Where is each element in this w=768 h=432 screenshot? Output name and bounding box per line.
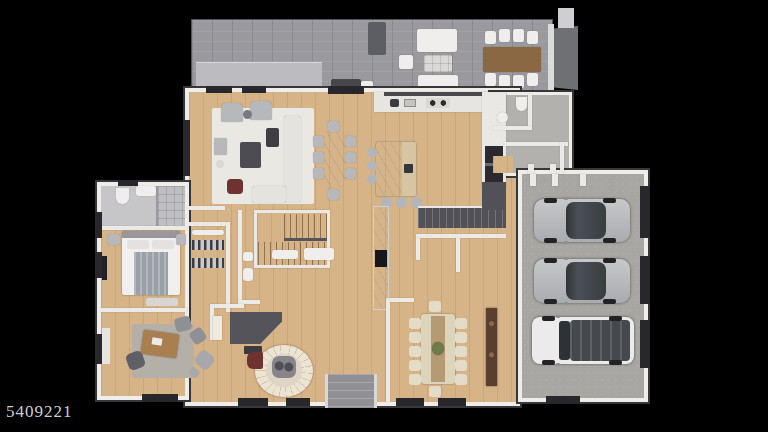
window	[118, 180, 138, 186]
dining-chair	[328, 189, 339, 200]
dining-chair	[429, 301, 441, 312]
outdoor-chair	[527, 31, 538, 44]
dining-chair	[345, 152, 356, 163]
dining-chair	[409, 318, 421, 329]
hanging-clothes	[192, 258, 224, 268]
car-mirror	[609, 360, 622, 365]
front-porch-steps	[328, 374, 374, 408]
car-wheel	[603, 198, 616, 203]
dining-chair	[409, 374, 421, 385]
breakfast-table	[323, 130, 346, 188]
garage-door-jamb	[552, 174, 558, 186]
outdoor-chair	[485, 31, 496, 44]
car-mirror	[564, 257, 568, 260]
silver-sedan	[534, 259, 630, 303]
window	[95, 334, 102, 364]
tv-stand	[266, 128, 279, 147]
dining-chair	[345, 168, 356, 179]
window	[183, 120, 190, 176]
hall-bench	[304, 248, 334, 260]
maroon-accent-chair	[227, 179, 243, 194]
garage-door	[640, 320, 650, 368]
bathroom-wall	[101, 226, 187, 230]
pantry-wall	[416, 234, 506, 238]
outdoor-chair	[499, 75, 510, 88]
table-centerpiece-plant	[432, 342, 444, 355]
dining-room-wall	[386, 298, 414, 302]
bedroom-tv	[102, 256, 107, 280]
car-mirror	[564, 302, 568, 305]
kitchen-sink	[404, 99, 416, 107]
pantry-wall	[416, 238, 420, 260]
shower-glass	[156, 186, 158, 226]
silver-sedan	[534, 199, 630, 242]
side-roof	[554, 26, 578, 90]
armchair	[250, 101, 272, 120]
island-sink	[404, 164, 413, 173]
bar-stool	[367, 161, 377, 171]
mls-number: 5409221	[6, 402, 73, 422]
nightstand	[108, 234, 120, 245]
powder-room-wall	[238, 210, 242, 304]
window	[238, 398, 268, 406]
window	[95, 212, 102, 238]
floor-lamp	[216, 160, 224, 168]
accent-table	[243, 110, 252, 119]
music-room-wall	[210, 304, 244, 308]
bookshelf	[102, 328, 110, 364]
outdoor-chair	[513, 29, 524, 42]
dining-chair	[409, 346, 421, 357]
window	[396, 398, 424, 406]
white-suv	[532, 317, 634, 364]
dining-chair	[313, 152, 324, 163]
mudroom-wall	[560, 142, 564, 174]
bath-vanity	[136, 186, 156, 196]
window	[242, 86, 266, 93]
window	[438, 398, 466, 406]
window	[142, 394, 178, 402]
desk-papers	[152, 337, 163, 345]
outdoor-sofa	[417, 29, 457, 52]
fireplace-tv	[375, 250, 387, 267]
dining-chair	[455, 332, 467, 343]
outdoor-side-table	[399, 55, 413, 69]
mudroom-wall	[504, 142, 568, 146]
garage-door-jamb	[580, 174, 586, 186]
bar-stool	[367, 148, 377, 158]
headboard	[122, 231, 180, 238]
side-table	[214, 138, 227, 155]
dining-chair	[429, 386, 441, 397]
bar-stool	[396, 197, 407, 208]
powder-sink	[243, 252, 253, 261]
bed-blanket	[134, 252, 168, 295]
dining-chair	[455, 374, 467, 385]
dining-chair	[345, 136, 356, 147]
door-jamb	[528, 164, 534, 174]
window	[206, 86, 232, 93]
cooktop	[426, 98, 450, 108]
pantry-wall	[456, 238, 460, 272]
car-glass-roof	[566, 202, 606, 239]
outdoor-coffee-table	[424, 55, 452, 72]
car-wheel	[603, 299, 616, 304]
car-wheel	[603, 238, 616, 243]
chimney	[558, 8, 574, 28]
patio-sliding-door	[328, 86, 364, 94]
outdoor-chair	[527, 73, 538, 86]
mudroom-sink	[497, 112, 508, 123]
hanging-clothes	[192, 240, 224, 250]
garage-door-jamb	[530, 174, 536, 186]
patio-planter	[368, 22, 386, 55]
maroon-chair	[247, 352, 263, 369]
dining-chair	[313, 136, 324, 147]
porch-curb	[374, 374, 377, 408]
toilet	[116, 188, 129, 204]
basement-stairs	[418, 208, 506, 228]
closet-wall	[189, 222, 229, 226]
car-wheel	[542, 360, 555, 365]
sectional-chaise	[252, 186, 286, 203]
dining-room-wall	[386, 300, 390, 402]
foyer-console	[213, 316, 222, 340]
garage-door	[640, 186, 650, 238]
stair-flight-upper	[284, 214, 327, 238]
dining-chair	[409, 360, 421, 371]
car-wheel	[609, 316, 622, 321]
floor-plan-render: 5409221	[0, 0, 768, 432]
basement-stairs-upper	[482, 182, 506, 210]
dining-chair	[328, 121, 339, 132]
hall-wall	[189, 206, 225, 210]
dining-chair	[455, 360, 467, 371]
door-jamb	[550, 164, 556, 174]
bed-bench	[146, 298, 178, 306]
bar-stool	[367, 174, 377, 184]
shower	[158, 186, 185, 226]
sideboard	[486, 308, 497, 386]
stair-newel-piece	[272, 356, 296, 378]
mudroom-closet-floor	[493, 156, 513, 173]
dining-chair	[313, 168, 324, 179]
garage-door	[640, 256, 650, 304]
car-wheel	[544, 258, 557, 263]
mudroom-wall	[493, 126, 532, 130]
car-mirror	[556, 315, 560, 318]
window	[95, 252, 102, 278]
outdoor-dining-table	[483, 47, 541, 72]
closet-wall	[226, 222, 230, 312]
car-wheel	[544, 198, 557, 203]
car-wheel	[544, 238, 557, 243]
suv-roof	[570, 320, 630, 361]
dining-chair	[455, 318, 467, 329]
coffee-table	[240, 142, 261, 168]
window	[546, 396, 580, 404]
outdoor-chair	[499, 29, 510, 42]
powder-toilet	[243, 268, 253, 281]
stair-landing-rail	[284, 238, 327, 241]
armchair	[221, 103, 243, 122]
window	[286, 398, 310, 406]
countertop-appliance	[390, 99, 399, 107]
mudroom-wall	[528, 94, 532, 128]
pillow	[152, 240, 174, 249]
nightstand	[176, 234, 186, 245]
patio-curb-wall	[548, 24, 554, 90]
bedroom-office-wall	[101, 308, 187, 312]
car-wheel	[542, 316, 555, 321]
mudroom-toilet	[516, 97, 527, 111]
outdoor-chair	[485, 73, 496, 86]
car-mirror	[564, 241, 568, 244]
kitchen-backsplash	[384, 92, 484, 96]
outdoor-chair	[513, 75, 524, 88]
car-glass-roof	[566, 262, 606, 300]
dining-chair	[455, 346, 467, 357]
dining-chair	[409, 332, 421, 343]
car-wheel	[544, 299, 557, 304]
suv-windshield	[559, 321, 570, 360]
car-wheel	[603, 258, 616, 263]
hall-console	[272, 250, 298, 259]
pillow	[127, 240, 149, 249]
closet-shelf	[192, 230, 224, 235]
sectional-sofa	[284, 116, 301, 202]
car-mirror	[564, 197, 568, 200]
